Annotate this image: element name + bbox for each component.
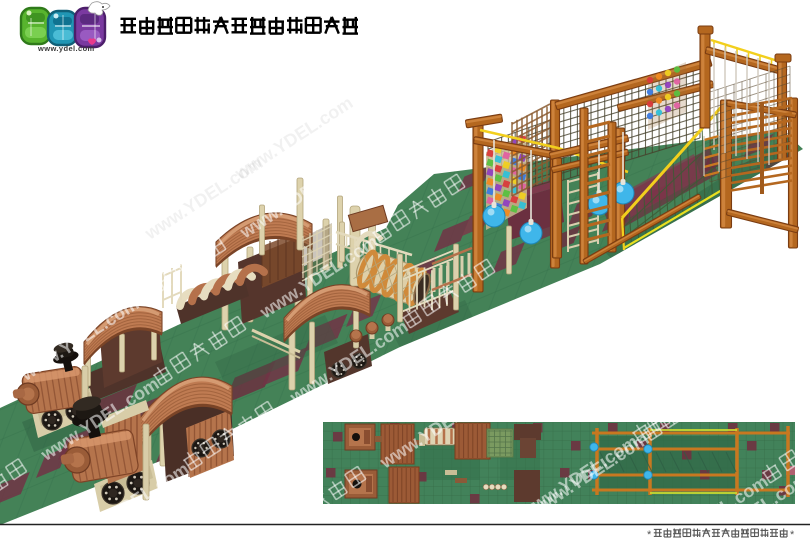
svg-text:www.ydel.com: www.ydel.com	[37, 44, 95, 53]
svg-text:*: *	[790, 529, 795, 540]
svg-text:*: *	[647, 529, 652, 540]
